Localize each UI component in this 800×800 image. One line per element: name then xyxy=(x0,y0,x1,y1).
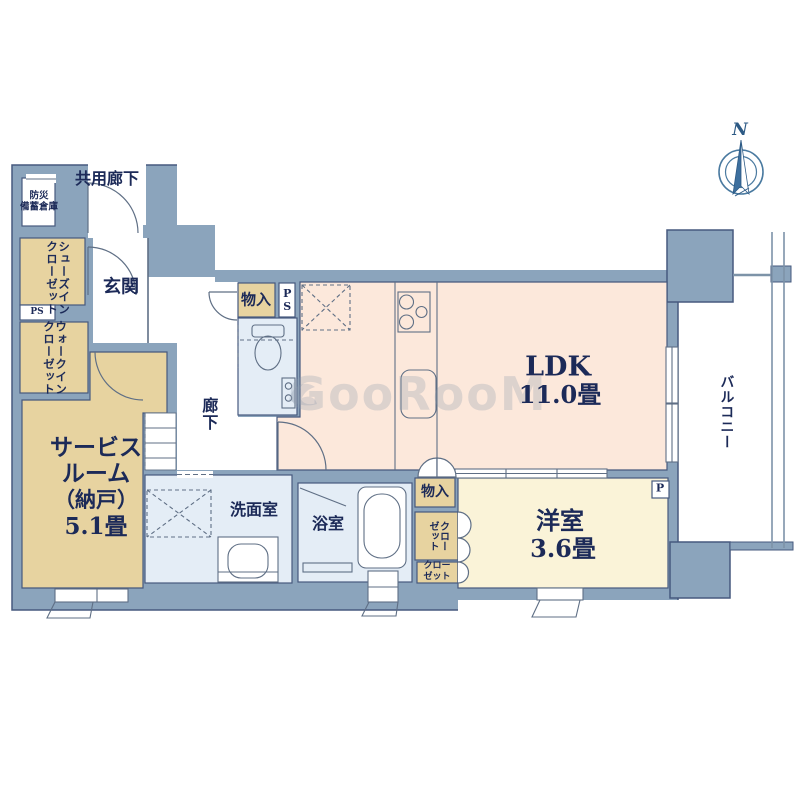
label-storage-top: 物入 xyxy=(241,291,271,308)
label-disaster-storage: 防災 備蓄倉庫 xyxy=(20,191,58,214)
label-ps-left: PS xyxy=(30,307,43,317)
label-ps-top: PS xyxy=(281,287,293,313)
label-compass-north: N xyxy=(732,121,748,141)
label-western-size: 3.6畳 xyxy=(530,535,596,563)
label-storage-bottom: 物入 xyxy=(421,484,449,500)
compass-icon xyxy=(719,140,763,196)
label-closet-large: クロー ゼット xyxy=(427,521,448,551)
label-hallway: 廊下 xyxy=(200,397,217,431)
label-ldk-size: 11.0畳 xyxy=(519,381,601,409)
vanity xyxy=(218,537,278,582)
label-closet-small: クロー ゼット xyxy=(423,561,450,583)
label-shoes-in-closet: シューズイン クローゼット xyxy=(46,241,70,316)
floor-plan: GooRooM 共用廊下 防災 備蓄倉庫 シューズイン クローゼット PS ウォ… xyxy=(0,0,800,800)
label-service-1: サービス xyxy=(50,435,142,461)
label-balcony: バルコニー xyxy=(719,375,734,450)
balcony-bottom-block xyxy=(670,542,730,598)
label-bathroom: 浴室 xyxy=(312,515,344,533)
label-common-corridor: 共用廊下 xyxy=(75,170,139,188)
balcony-rail-post xyxy=(771,266,791,282)
hall-upper xyxy=(146,277,215,343)
label-service-4: 5.1畳 xyxy=(64,514,127,540)
label-walk-in-closet: ウォークイン クローゼット xyxy=(43,321,67,396)
label-service-2: ルーム xyxy=(62,461,130,487)
label-washroom: 洗面室 xyxy=(230,501,278,519)
label-service-3: （納戸） xyxy=(54,488,138,512)
label-ldk-name: LDK xyxy=(525,351,591,382)
label-pillar-mark: P xyxy=(656,483,664,496)
watermark-text: GooRooM xyxy=(288,367,547,421)
balcony-pillar xyxy=(667,230,733,302)
label-entrance: 玄関 xyxy=(103,278,139,299)
label-western-name: 洋室 xyxy=(536,507,584,535)
